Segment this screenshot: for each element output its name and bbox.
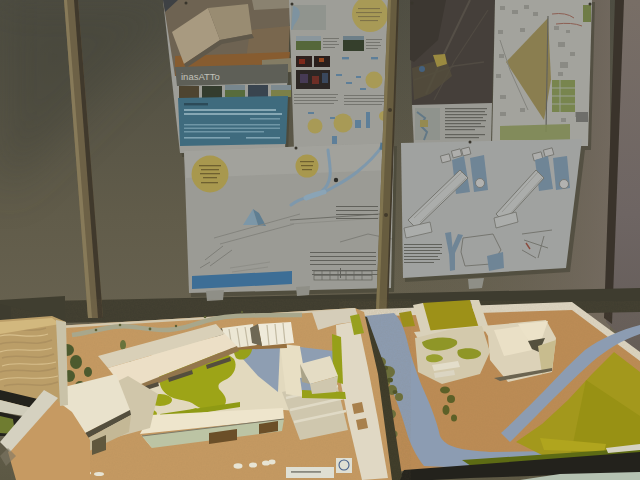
svg-text:inasATTo: inasATTo: [181, 71, 220, 82]
